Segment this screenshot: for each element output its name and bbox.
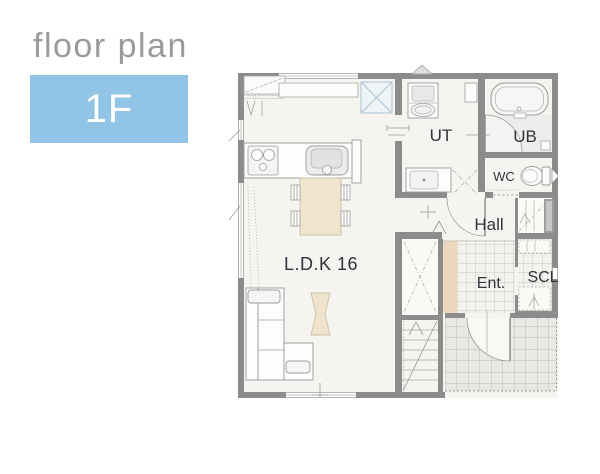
window-left-large (238, 183, 244, 278)
under-stair-closet (402, 239, 438, 315)
wall-ent-stub-right (510, 313, 515, 318)
page: { "header": { "title": "floor plan", "fl… (0, 0, 600, 474)
room-label-ub: UB (513, 127, 537, 146)
hall-closet (518, 198, 554, 233)
wall-wc-right (519, 192, 558, 198)
bath-stool (541, 141, 550, 150)
vanity-sink (406, 168, 451, 192)
kitchen-sink (306, 146, 348, 175)
chair (291, 185, 300, 200)
wall-ent-scl-upper (515, 239, 518, 267)
wall-stairs-top (395, 315, 442, 320)
bathtub (491, 83, 548, 115)
water-supply-icon (412, 65, 432, 74)
room-label-entrance: Ent. (477, 275, 505, 292)
chair (291, 211, 300, 226)
wall-ut-ub (478, 79, 485, 192)
floor-badge-1f[interactable]: 1F (30, 75, 188, 143)
bathtub-step (514, 113, 526, 118)
dining-table (300, 178, 341, 235)
pipe-space-inner (546, 201, 552, 231)
toilet (521, 167, 550, 186)
wall-hall-closet-left (515, 198, 518, 239)
wall-wc-stub (485, 192, 493, 198)
room-label-wc: WC (493, 169, 515, 184)
room-label-ut: UT (430, 126, 453, 145)
wall-stairs-left (395, 320, 402, 392)
kitchen-bar-return (352, 140, 361, 183)
wall-ldk-ut-upper (395, 79, 402, 115)
room-label-ldk: L.D.K 16 (284, 254, 358, 274)
window-left-small (238, 120, 244, 140)
wall-closet-left (395, 232, 402, 320)
stove (248, 146, 278, 175)
sofa-cushion (286, 361, 310, 373)
chair (341, 185, 350, 200)
wall-ut-hall-left (395, 192, 447, 198)
room-label-hall: Hall (474, 215, 503, 234)
window-top (279, 73, 358, 79)
floor-badge-label: 1F (85, 87, 134, 132)
ut-cabinet (465, 83, 477, 102)
wall-ldk-ut-lower (395, 141, 402, 198)
floor-plan-drawing: L.D.K 16 UT UB WC Hall Ent. SCL (226, 63, 558, 398)
kitchen-back-counter (279, 83, 358, 97)
wc-sliding-door (493, 192, 519, 198)
wall-closet-top (395, 232, 442, 239)
sofa-armrest (248, 290, 280, 303)
wall-scl-top (515, 233, 558, 239)
room-label-scl: SCL (527, 269, 558, 286)
chair (341, 211, 350, 226)
wall-closet-right (438, 239, 443, 320)
entrance-step-strip (443, 241, 458, 313)
washing-machine (408, 83, 438, 118)
wall-ent-stub-left (445, 313, 465, 318)
wall-stairs-right (438, 320, 443, 392)
wall-scl-bottom (515, 311, 558, 318)
stairs (402, 320, 438, 392)
wall-ub-wc (478, 152, 558, 158)
pantry-xbox (361, 82, 392, 113)
dining-set (291, 178, 350, 235)
floor-plan-title: floor plan (33, 27, 188, 66)
